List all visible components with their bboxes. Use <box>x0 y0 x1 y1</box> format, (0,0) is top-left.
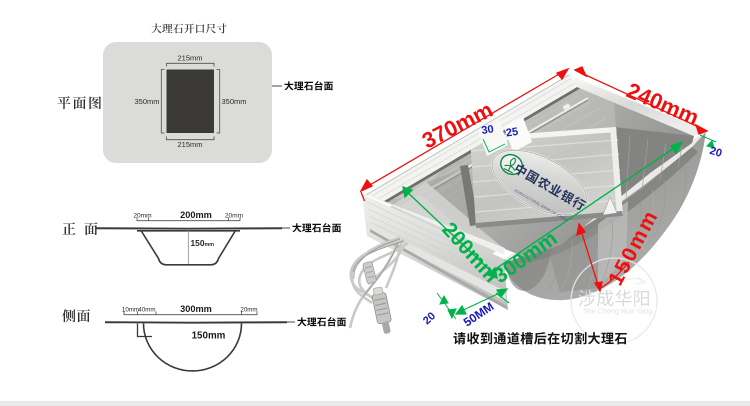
svg-text:20mm: 20mm <box>133 213 152 220</box>
svg-text:150mm: 150mm <box>191 238 215 248</box>
svg-text:215mm: 215mm <box>177 54 202 63</box>
svg-text:350mm: 350mm <box>134 97 159 106</box>
svg-text:25: 25 <box>505 126 519 140</box>
svg-text:20mm: 20mm <box>240 307 257 314</box>
svg-text:215mm: 215mm <box>177 140 202 149</box>
svg-text:350mm: 350mm <box>222 97 247 106</box>
svg-text:20: 20 <box>708 145 723 160</box>
svg-text:200mm: 200mm <box>180 210 212 220</box>
svg-text:She Cheng Hua Yang: She Cheng Hua Yang <box>583 307 652 316</box>
svg-text:50MM: 50MM <box>461 299 496 329</box>
svg-text:20: 20 <box>421 310 438 327</box>
svg-text:40mm: 40mm <box>138 307 155 314</box>
svg-text:30: 30 <box>481 123 495 137</box>
svg-text:300mm: 300mm <box>180 304 212 314</box>
svg-text:20mm: 20mm <box>225 213 244 220</box>
svg-text:150mm: 150mm <box>192 331 226 342</box>
svg-text:10mm: 10mm <box>122 307 139 314</box>
